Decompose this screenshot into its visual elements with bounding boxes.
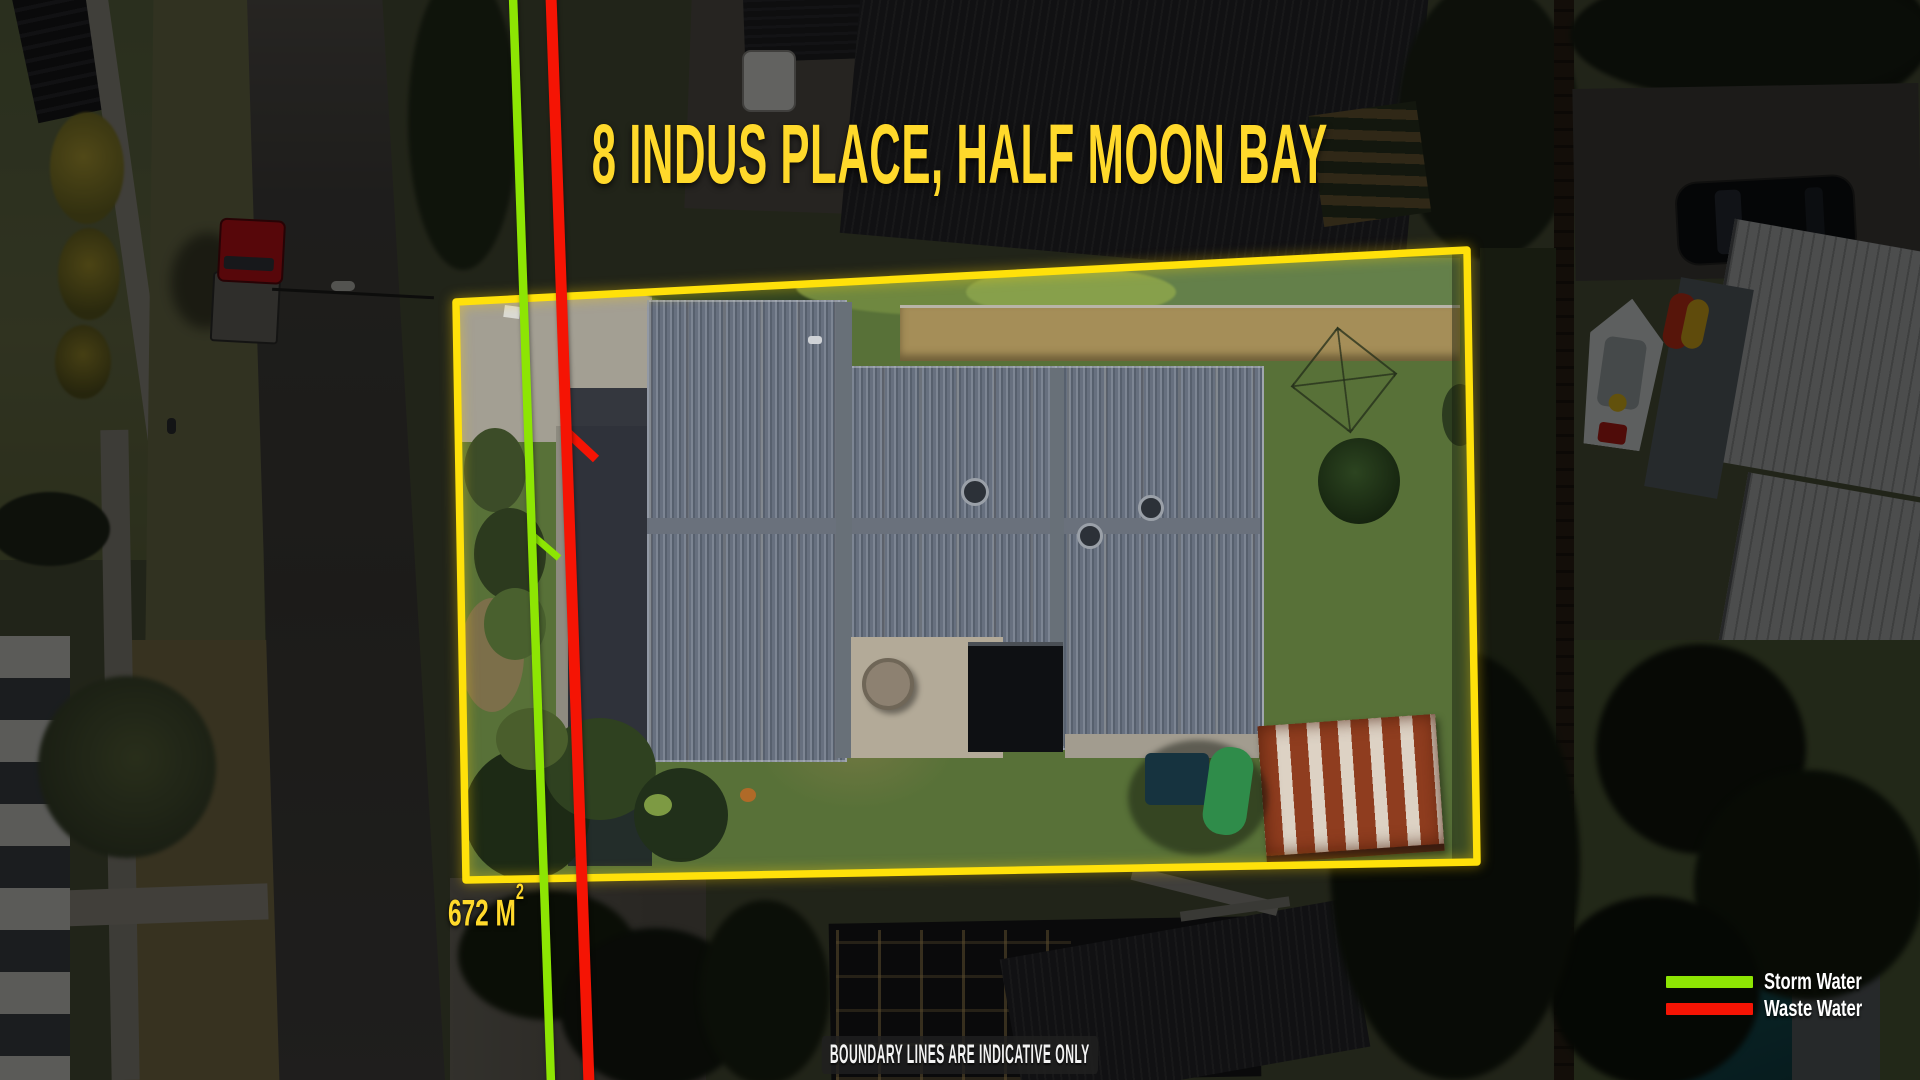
property-address-text: 8 INDUS PLACE, HALF MOON BAY	[592, 112, 1328, 196]
land-area-value: 672 M	[448, 892, 516, 933]
disclaimer: BOUNDARY LINES ARE INDICATIVE ONLY	[0, 1036, 1920, 1074]
land-area-label: 672 M2	[448, 894, 563, 931]
utilities-legend: Storm Water Waste Water	[1666, 968, 1900, 1022]
waste-water-swatch-rect	[1666, 1003, 1753, 1015]
land-area-superscript: 2	[516, 879, 524, 904]
legend-row-storm-water: Storm Water	[1666, 968, 1900, 995]
property-address-title: 8 INDUS PLACE, HALF MOON BAY	[0, 112, 1920, 196]
waste-water-swatch	[1666, 1003, 1753, 1015]
legend-row-waste-water: Waste Water	[1666, 995, 1900, 1022]
storm-water-label: Storm Water	[1764, 970, 1862, 993]
aerial-photo-stage: 8 INDUS PLACE, HALF MOON BAY 672 M2 Stor…	[0, 0, 1920, 1080]
storm-water-swatch-rect	[1666, 976, 1753, 988]
property-boundary-line	[456, 250, 1477, 880]
disclaimer-text: BOUNDARY LINES ARE INDICATIVE ONLY	[822, 1036, 1098, 1074]
storm-water-swatch	[1666, 976, 1753, 988]
waste-water-label: Waste Water	[1764, 997, 1862, 1020]
